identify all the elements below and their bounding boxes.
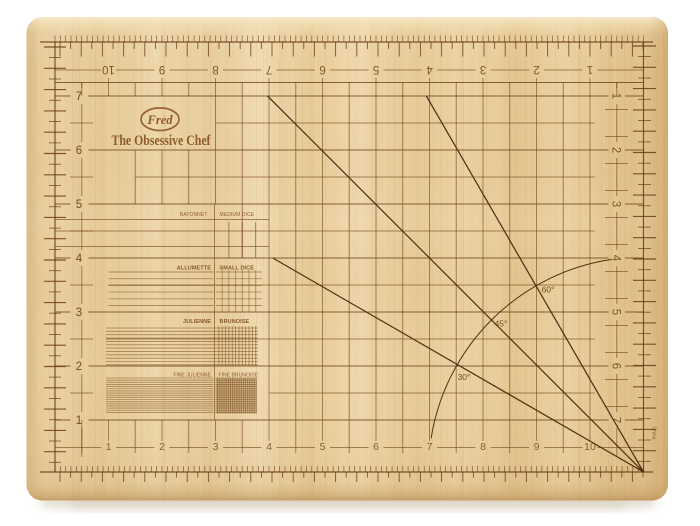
- svg-text:1: 1: [76, 415, 82, 427]
- svg-text:5: 5: [610, 309, 622, 315]
- svg-text:1: 1: [610, 93, 622, 99]
- svg-text:2: 2: [76, 361, 82, 373]
- svg-text:4: 4: [610, 255, 622, 262]
- svg-text:China: China: [651, 426, 657, 439]
- svg-text:3: 3: [76, 307, 82, 319]
- svg-text:6: 6: [373, 441, 379, 453]
- svg-text:10: 10: [584, 441, 596, 453]
- svg-text:7: 7: [427, 441, 433, 453]
- svg-text:1: 1: [106, 441, 112, 453]
- svg-text:4: 4: [76, 253, 83, 265]
- svg-text:2: 2: [533, 63, 539, 75]
- svg-text:BRUNOISE: BRUNOISE: [220, 319, 250, 325]
- svg-text:30°: 30°: [458, 372, 471, 382]
- svg-text:8: 8: [480, 441, 486, 453]
- svg-text:Fred: Fred: [147, 113, 174, 127]
- svg-text:3: 3: [480, 63, 486, 75]
- svg-text:BATONNET: BATONNET: [180, 212, 208, 218]
- svg-text:The Obsessive Chef: The Obsessive Chef: [112, 133, 211, 149]
- svg-text:7: 7: [266, 63, 272, 75]
- svg-text:2: 2: [159, 441, 165, 453]
- svg-text:5: 5: [320, 441, 326, 453]
- svg-text:45°: 45°: [495, 319, 508, 329]
- svg-text:4: 4: [426, 63, 433, 75]
- svg-text:60°: 60°: [542, 285, 555, 295]
- svg-text:6: 6: [319, 63, 325, 75]
- svg-text:9: 9: [534, 441, 540, 453]
- svg-text:FINE JULIENNE: FINE JULIENNE: [173, 372, 211, 378]
- svg-text:5: 5: [373, 63, 379, 75]
- svg-text:1: 1: [587, 63, 593, 75]
- svg-text:FINE BRUNOISE: FINE BRUNOISE: [219, 372, 259, 378]
- svg-text:8: 8: [212, 63, 218, 75]
- svg-text:MEDIUM DICE: MEDIUM DICE: [220, 212, 255, 218]
- svg-text:3: 3: [610, 201, 622, 207]
- svg-text:4: 4: [266, 441, 272, 453]
- svg-text:5: 5: [76, 199, 82, 211]
- svg-text:3: 3: [213, 441, 219, 453]
- svg-text:SMALL DICE: SMALL DICE: [220, 265, 255, 271]
- svg-text:9: 9: [159, 63, 165, 75]
- svg-text:JULIENNE: JULIENNE: [183, 319, 211, 325]
- svg-text:2: 2: [610, 147, 622, 153]
- svg-text:7: 7: [76, 91, 82, 103]
- svg-text:ALLUMETTE: ALLUMETTE: [177, 265, 211, 271]
- svg-text:6: 6: [76, 145, 82, 157]
- svg-text:6: 6: [610, 363, 622, 369]
- svg-text:7: 7: [610, 417, 622, 423]
- svg-text:10: 10: [102, 63, 115, 75]
